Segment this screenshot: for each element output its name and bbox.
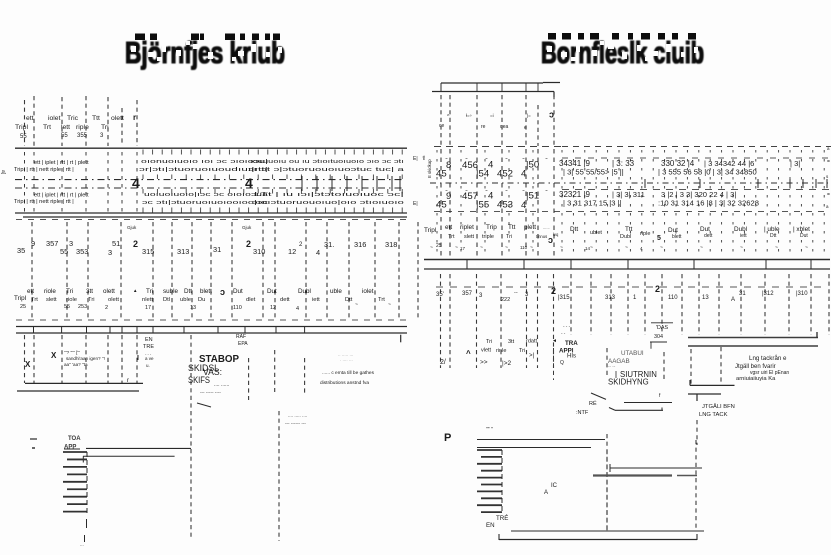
svg-text:>|: >| <box>529 353 535 359</box>
svg-text:Dtt: Dtt <box>770 233 777 239</box>
svg-text:.... ......: .... ...... <box>214 382 229 388</box>
svg-text:TRE: TRE <box>143 344 154 350</box>
svg-text:plett: plett <box>524 224 536 231</box>
svg-text:4: 4 <box>245 175 253 191</box>
svg-text:Dut: Dut <box>668 227 678 234</box>
svg-text:~: ~ <box>455 245 458 251</box>
svg-text:3: 3 <box>69 239 73 248</box>
svg-text:uble: uble <box>180 297 191 303</box>
svg-text:2/: 2/ <box>440 359 446 366</box>
svg-text:rdatt: rdatt <box>526 339 537 345</box>
svg-text:-- --: -- -- <box>608 364 616 369</box>
svg-text:ɔ: ɔ <box>220 287 225 297</box>
svg-text:35: 35 <box>17 246 25 255</box>
svg-text:E|: E| <box>413 156 418 162</box>
svg-text:slett: slett <box>46 297 57 303</box>
svg-text:sandhi'aan igen? ''!: sandhi'aan igen? ''! <box>66 356 105 361</box>
svg-text:8: 8 <box>446 160 451 171</box>
svg-text:~: ~ <box>480 245 483 251</box>
svg-text:LNG TACK: LNG TACK <box>699 412 728 418</box>
svg-text:IC: IC <box>551 483 558 489</box>
svg-text:Ttt: Ttt <box>92 115 100 122</box>
svg-text:~: ~ <box>465 156 468 161</box>
svg-text:tinnus: tinnus <box>536 234 547 239</box>
svg-text:Trt: Trt <box>31 297 38 303</box>
svg-text:~: ~ <box>740 245 743 251</box>
svg-text:Tri: Tri <box>101 124 109 131</box>
svg-text:A: A <box>544 490 548 496</box>
svg-text:2: 2 <box>105 305 108 311</box>
svg-text:110: 110 <box>668 295 678 301</box>
svg-text:=: = <box>827 159 830 165</box>
svg-text:triple: triple <box>482 234 494 240</box>
svg-text:313: 313 <box>605 295 616 301</box>
svg-text:~: ~ <box>355 302 358 308</box>
svg-text:12: 12 <box>270 305 276 311</box>
svg-text:'DAS: 'DAS <box>656 325 669 331</box>
svg-text:Trt: Trt <box>378 297 385 303</box>
svg-text:distributions anstnd fva: distributions anstnd fva <box>320 380 369 386</box>
svg-text:~: ~ <box>445 156 448 161</box>
svg-text:UTABUI: UTABUI <box>621 350 644 357</box>
svg-text:olett: olett <box>108 297 119 303</box>
svg-text:110: 110 <box>233 305 242 311</box>
svg-text:iett: iett <box>312 297 320 303</box>
svg-text:EN: EN <box>486 522 495 529</box>
svg-text:--: -- <box>514 290 518 296</box>
svg-text:Dubl: Dubl <box>298 288 311 295</box>
svg-text:P: P <box>444 432 451 444</box>
svg-text:35': 35' <box>436 292 444 298</box>
svg-text:lett: lett <box>61 124 70 131</box>
svg-text:Dtt: Dtt <box>570 226 578 233</box>
svg-text:| 3 555 56 58 |0 | 3| 34 34850: | 3 555 56 58 |0 | 3| 34 34850 <box>658 168 757 177</box>
svg-text:>>: >> <box>480 359 488 366</box>
svg-text:◄: ◄ <box>552 338 557 344</box>
svg-text:3tt: 3tt <box>86 288 93 295</box>
svg-text:JTGÅLI BFN: JTGÅLI BFN <box>702 403 735 410</box>
svg-text::10 31 314 16 |8 | 3| 32 3262: :10 31 314 16 |8 | 3| 32 32628 <box>658 199 759 208</box>
svg-text:Dubl: Dubl <box>734 226 747 233</box>
svg-text:a]: a] <box>0 170 6 175</box>
svg-text:......: ...... <box>543 225 550 230</box>
svg-text:vlett: vlett <box>481 348 492 354</box>
svg-text:dett: dett <box>280 297 290 303</box>
svg-text:▲: ▲ <box>133 288 137 293</box>
svg-text:riole: riole <box>66 297 77 303</box>
svg-text:e: e <box>524 125 527 131</box>
svg-text:452: 452 <box>497 169 513 180</box>
svg-text:ett: ett <box>27 288 34 295</box>
svg-text:ett: ett <box>445 224 452 231</box>
svg-text:lvq: lvq <box>553 232 559 237</box>
svg-text:|51: |51 <box>526 191 539 202</box>
svg-text:riplet: riplet <box>460 224 474 231</box>
svg-text:~: ~ <box>505 245 508 251</box>
svg-text:=: = <box>827 192 830 198</box>
svg-text:3tt: 3tt <box>508 339 515 345</box>
svg-text:25: 25 <box>20 304 26 310</box>
svg-text:55: 55 <box>60 247 68 256</box>
svg-text:~: ~ <box>545 188 548 193</box>
svg-text:31.: 31. <box>324 240 334 249</box>
svg-text:~: ~ <box>505 156 508 161</box>
svg-text:304: 304 <box>654 334 663 340</box>
svg-text:suble: suble <box>163 288 179 295</box>
svg-text:4: 4 <box>296 306 299 312</box>
svg-text:oıonuoıuoıo ıoı ɔc ɔıoıoɔu|: oıonuoıuoıo ıoı ɔc ɔıoıoɔu| <box>141 159 268 165</box>
svg-text:~: ~ <box>388 302 391 308</box>
svg-text:uble: uble <box>330 288 342 295</box>
svg-text:~: ~ <box>545 156 548 161</box>
svg-text:rinle: rinle <box>496 348 506 354</box>
svg-text:r: r <box>127 378 129 384</box>
svg-text:APP: APP <box>64 445 76 451</box>
svg-text:Dtl: Dtl <box>163 297 170 303</box>
svg-text:u.: u. <box>146 363 150 368</box>
svg-text:| uble: | uble <box>764 226 780 233</box>
svg-text:TRÉ: TRÉ <box>496 515 508 522</box>
svg-text:re: re <box>481 124 486 130</box>
svg-text:~: ~ <box>625 245 628 251</box>
svg-text:| 3| 55 55/55> |5 ||: | 3| 55 55/55> |5 || <box>563 168 624 177</box>
svg-text:13: 13 <box>702 295 709 301</box>
svg-text:25: 25 <box>436 243 442 249</box>
svg-text:~: ~ <box>775 245 778 251</box>
svg-text:2: 2 <box>655 284 660 294</box>
svg-text:^: ^ <box>466 349 471 358</box>
svg-text:iett: iett <box>740 233 747 239</box>
svg-text:...: ... <box>80 542 84 547</box>
svg-text:blett: blett <box>200 288 212 295</box>
svg-text:Trip: Trip <box>486 224 497 231</box>
svg-text:ł=÷: ł=÷ <box>466 113 473 118</box>
svg-text:110: 110 <box>520 245 528 250</box>
svg-text:357: 357 <box>462 291 473 297</box>
svg-text:| 3|: | 3| <box>790 159 800 168</box>
svg-text:'''? ''''' [''': '''? ''''' [''' <box>64 350 80 355</box>
svg-text:Dubl: Dubl <box>620 234 631 240</box>
svg-text:14: 14 <box>585 246 591 251</box>
svg-text:olett: olett <box>111 115 124 122</box>
svg-text:Ttt: Ttt <box>508 224 516 231</box>
svg-text:~: ~ <box>522 156 525 161</box>
svg-text:Tripl | rtt | nett riple | rt: Tripl | rtt | nett riple | rtt | <box>14 167 74 173</box>
svg-text:~: ~ <box>430 245 433 251</box>
svg-text:a ve: a ve <box>145 356 154 361</box>
svg-text:TRA: TRA <box>565 340 578 347</box>
svg-text:Tri: Tri <box>486 339 492 345</box>
svg-text:|310: |310 <box>796 291 808 297</box>
svg-text:iolet: iolet <box>48 115 61 122</box>
svg-text:dlet: dlet <box>246 297 256 303</box>
svg-text:ett | iplet | rtt | rt | ple: ett | iplet | rtt | rt | plett <box>34 193 89 199</box>
svg-text:~: ~ <box>485 156 488 161</box>
svg-text:Tripl: Tripl <box>424 227 436 234</box>
svg-text:Dut: Dut <box>233 288 243 295</box>
svg-text:~: ~ <box>522 188 525 193</box>
svg-text:ett: ett <box>26 115 34 122</box>
svg-text:4: 4 <box>316 248 320 257</box>
svg-text:...... c emta till be gathes: ...... c emta till be gathes <box>322 370 375 376</box>
svg-text:4: 4 <box>132 175 140 191</box>
svg-text:13: 13 <box>190 305 196 311</box>
svg-text:~: ~ <box>805 245 808 251</box>
svg-text:51: 51 <box>112 239 120 248</box>
svg-text:253: 253 <box>78 304 87 310</box>
svg-text:Tripl: Tripl <box>15 124 28 131</box>
svg-text:riple: riple <box>640 231 650 237</box>
svg-text:aa'' 'aa? ''ta: aa'' 'aa? ''ta <box>64 362 88 367</box>
svg-text:Tripl: Tripl <box>14 295 26 302</box>
svg-text:~: ~ <box>700 245 703 251</box>
svg-text:~: ~ <box>590 245 593 251</box>
svg-text:Q: Q <box>560 360 564 366</box>
svg-text:--- ------ ---: --- ------ --- <box>285 421 306 426</box>
svg-text:- - -: - - - <box>563 324 571 329</box>
svg-text:| 3 31 317 15 |3 ||: | 3 31 317 15 |3 || <box>563 199 622 208</box>
svg-text:~: ~ <box>505 188 508 193</box>
svg-text:Dut: Dut <box>700 226 710 233</box>
svg-text:HIs: HIs <box>567 354 576 360</box>
svg-text:nlett: nlett <box>142 297 153 303</box>
svg-text:Tri: Tri <box>88 297 95 303</box>
svg-text:LTt | ıu ıɔı|ɔtɔtoıuoıuoc ɔc|: LTt | ıu ıɔı|ɔtɔtoıuoıuoc ɔc| <box>254 192 404 198</box>
svg-text:|=: |= <box>527 113 531 118</box>
svg-text:~: ~ <box>445 188 448 193</box>
svg-text:ett | iplet | rtt | rt | ple: ett | iplet | rtt | rt | plett <box>34 160 89 166</box>
svg-text:A: A <box>731 297 735 303</box>
svg-text:4: 4 <box>521 200 527 211</box>
svg-text:riole: riole <box>44 288 56 295</box>
svg-text:ɔr ɔt ɔ|ɔtuoruouoıuoɔtuc tuc|: ɔr ɔt ɔ|ɔtuoruouoıuoɔtuc tuc| a <box>248 167 405 173</box>
svg-text:45: 45 <box>436 200 447 211</box>
svg-text:2: 2 <box>133 239 138 249</box>
svg-text:~: ~ <box>465 188 468 193</box>
svg-text:"" ": "" " <box>486 427 493 433</box>
svg-text:318: 318 <box>385 240 397 249</box>
svg-text:|50: |50 <box>526 160 539 171</box>
svg-text:222: 222 <box>501 297 510 303</box>
svg-text:Du: Du <box>198 297 205 303</box>
svg-text:Dtt: Dtt <box>345 297 353 303</box>
svg-text:17: 17 <box>460 246 466 251</box>
svg-text:.... ..... ....: .... ..... .... <box>288 413 307 418</box>
svg-text:310: 310 <box>253 247 265 256</box>
svg-text:r: r <box>133 113 136 122</box>
svg-text:SKIFS: SKIFS <box>188 375 210 385</box>
svg-text:Dut: Dut <box>800 233 808 239</box>
svg-text:313: 313 <box>177 247 189 256</box>
svg-text:SKIDHYNG: SKIDHYNG <box>608 378 649 387</box>
svg-text:Tri: Tri <box>66 288 73 295</box>
svg-text:Dtt: Dtt <box>184 288 192 295</box>
svg-text::NTF: :NTF <box>576 410 589 416</box>
svg-text:Gjuk: Gjuk <box>127 225 137 230</box>
svg-text:blett: blett <box>672 234 682 240</box>
svg-text:~: ~ <box>560 245 563 251</box>
svg-text:- -: - - <box>561 331 566 336</box>
svg-text:3: 3 <box>108 248 112 257</box>
svg-text:17: 17 <box>145 305 151 311</box>
svg-text:45: 45 <box>436 169 447 180</box>
svg-text:31: 31 <box>213 245 221 254</box>
svg-text:arniuiaiiuyia Ka: arniuiaiiuyia Ka <box>736 376 776 382</box>
svg-text:~: ~ <box>530 245 533 251</box>
svg-text:dett: dett <box>704 233 713 239</box>
svg-text:|>2: |>2 <box>502 360 511 367</box>
svg-text:Tri: Tri <box>146 288 153 295</box>
svg-text:316: 316 <box>354 240 366 249</box>
svg-text:--- ----- ----: --- ----- ---- <box>200 390 221 395</box>
svg-text:EPA: EPA <box>238 341 248 347</box>
svg-text:EN: EN <box>145 337 153 343</box>
svg-text:|54: |54 <box>476 169 490 180</box>
svg-text:Tri: Tri <box>519 348 525 354</box>
svg-text:|55: |55 <box>476 200 489 211</box>
svg-text:slett: slett <box>464 234 475 240</box>
svg-text:ɔ: ɔ <box>549 110 554 120</box>
svg-text:357: 357 <box>46 239 58 248</box>
svg-text:E|: E| <box>413 201 418 207</box>
svg-text:ce: ce <box>439 123 445 129</box>
svg-text:355: 355 <box>77 133 88 139</box>
svg-text:|312: |312 <box>762 291 774 297</box>
svg-text:353: 353 <box>76 247 88 256</box>
svg-text:| xblet: | xblet <box>793 226 810 233</box>
svg-text:Dut: Dut <box>267 288 277 295</box>
svg-text:55: 55 <box>20 134 27 140</box>
svg-text:qea: qea <box>500 124 509 130</box>
svg-text:uoıuoıuoıo|ıɔc ɔc oıoıoɔua: uoıuoıuoıo|ıɔc ɔc oıoıoɔua <box>144 192 269 198</box>
svg-text:2: 2 <box>551 286 556 296</box>
svg-text:Trt: Trt <box>43 124 51 131</box>
svg-text:I: I <box>137 355 139 362</box>
svg-text:Trt: Trt <box>448 234 455 240</box>
svg-text:ublet: ublet <box>590 230 602 236</box>
svg-text:Gjuk: Gjuk <box>242 225 252 230</box>
svg-text:X: X <box>51 351 57 360</box>
svg-text:9: 9 <box>31 239 35 248</box>
svg-text:X: X <box>25 360 31 369</box>
svg-text:RÉ: RÉ <box>589 400 597 407</box>
svg-text:55: 55 <box>64 304 70 310</box>
svg-text:55: 55 <box>61 133 68 139</box>
svg-text:ɔc ɔtı|ɔtuoruoıuoıooıoo|ɔc: ɔc ɔtı|ɔtuoruoıuoıooıoo|ɔc <box>142 200 268 206</box>
svg-text:=i: =i <box>490 113 494 118</box>
svg-text:~: ~ <box>485 188 488 193</box>
svg-text:Tric: Tric <box>67 115 79 122</box>
svg-text:4: 4 <box>521 169 527 180</box>
svg-text:Tripl | rtt | nett riple | rt: Tripl | rtt | nett riple | rtt | <box>14 199 74 205</box>
svg-text:Lng tackrån e: Lng tackrån e <box>749 355 787 362</box>
svg-text:315: 315 <box>142 247 154 256</box>
svg-text:Ttt: Ttt <box>625 226 633 233</box>
svg-text:olett: olett <box>103 288 115 295</box>
svg-text:E skidkap: E skidkap <box>427 159 432 178</box>
svg-text:RAF: RAF <box>236 334 246 340</box>
svg-text:5: 5 <box>657 235 661 242</box>
svg-text:ɔıoıɔtuoruouoıuo|oıo ɔtıoıuoıo: ɔıoıɔtuoruouoıuo|oıo ɔtıoıuoıo <box>252 200 404 206</box>
svg-text:12: 12 <box>288 247 296 256</box>
svg-text:~: ~ <box>660 245 663 251</box>
svg-text:|315: |315 <box>558 295 570 301</box>
svg-text:453: 453 <box>497 200 513 211</box>
svg-text:ıouuuoıu ou ıu ɔtıoıtuoıuoıo ɔ: ıouuuoıu ou ıu ɔtıoıtuoıuoıo ɔıo ɔc ɔtı <box>250 159 405 165</box>
svg-text:iolet: iolet <box>362 288 374 295</box>
svg-text:TOA: TOA <box>68 436 81 442</box>
svg-text:2: 2 <box>246 239 251 249</box>
svg-text:. .... ...: . .... ... <box>340 357 353 362</box>
svg-text:riple: riple <box>76 124 89 131</box>
svg-text:31: 31 <box>739 291 746 297</box>
svg-text:Tri: Tri <box>506 234 512 240</box>
